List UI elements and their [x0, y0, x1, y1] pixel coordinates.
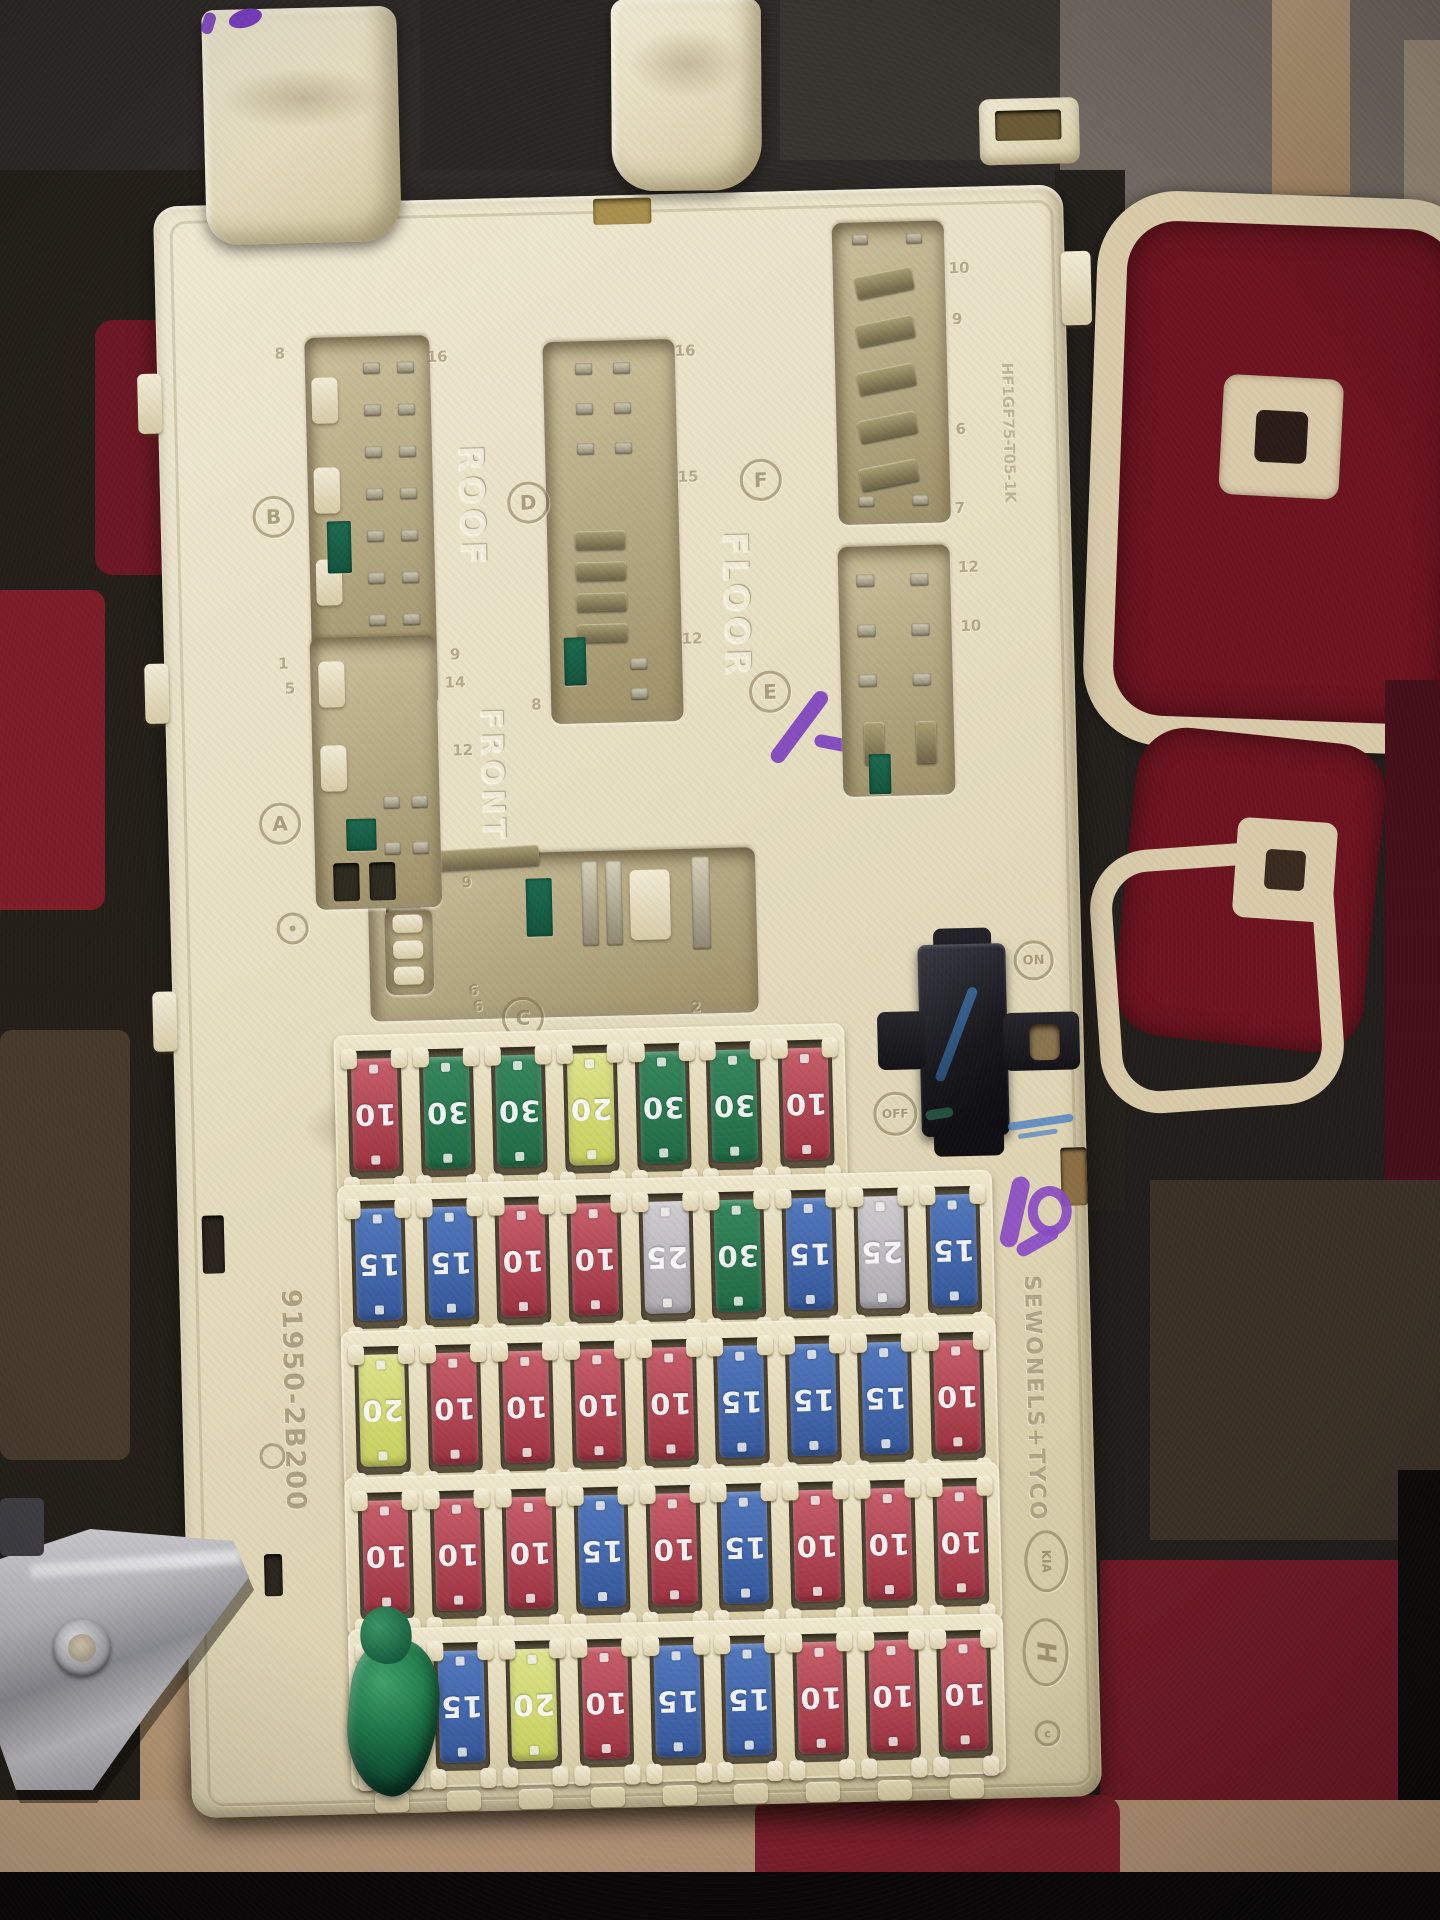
- fuse-amp-label: 15: [785, 1197, 834, 1310]
- slot-clip-nub: [502, 1767, 518, 1787]
- slot-clip-nub: [699, 1040, 715, 1060]
- side-nub-3: [152, 991, 177, 1052]
- terminal-pin: [575, 363, 592, 374]
- slot-clip-nub: [682, 1191, 698, 1211]
- terminal-pin: [385, 842, 401, 854]
- fuse-window: [879, 1348, 888, 1357]
- terminal-pin: [364, 404, 381, 415]
- fuse: 10: [868, 1639, 917, 1752]
- fuse-window: [671, 1651, 680, 1660]
- fuse: 10: [502, 1350, 551, 1463]
- side-nub-2: [144, 663, 169, 724]
- slot-clip-nub: [764, 1633, 780, 1653]
- fuse-window: [371, 1155, 380, 1164]
- fuse-window: [458, 1747, 467, 1756]
- slot-clip-nub: [636, 1338, 652, 1358]
- pcb-slot: [327, 521, 352, 574]
- slot-clip-nub: [477, 1640, 493, 1660]
- slot-clip-nub: [574, 1765, 590, 1785]
- fuse-amp-label: 10: [796, 1641, 845, 1754]
- fuse-window: [961, 1735, 970, 1744]
- cavity-wall-nub: [313, 467, 340, 514]
- fuse: 30: [639, 1051, 688, 1164]
- fuse-window: [376, 1360, 385, 1369]
- fuse-window: [378, 1451, 387, 1460]
- slot-clip-nub: [717, 1762, 733, 1782]
- slot-clip-nub: [836, 1631, 852, 1651]
- slot-clip-nub: [480, 1768, 496, 1788]
- slot-clip-nub: [757, 1335, 773, 1355]
- slot-clip-nub: [760, 1481, 776, 1501]
- fuse: 20: [509, 1648, 558, 1761]
- terminal-pin-large: [855, 314, 916, 347]
- fuse: 10: [434, 1498, 483, 1611]
- terminal-pin: [402, 571, 419, 582]
- slot-clip-nub: [782, 1480, 798, 1500]
- pin-number: 7: [954, 499, 965, 517]
- terminal-pin: [910, 573, 928, 585]
- slot-clip-nub: [923, 1331, 939, 1351]
- pin-number: 2: [690, 998, 701, 1016]
- part-number: 91950-2B200: [275, 1289, 311, 1513]
- pcb-slot: [346, 818, 377, 851]
- fuse-amp-label: 30: [639, 1051, 688, 1164]
- fuse-window: [657, 1057, 666, 1066]
- mold-code: HF1GF75-T05-1K: [998, 363, 1019, 503]
- fuse-window: [443, 1154, 452, 1163]
- terminal-pin: [368, 572, 385, 583]
- fuse: 10: [574, 1349, 623, 1462]
- fuse-window: [448, 1359, 457, 1368]
- slot-clip-nub: [646, 1764, 662, 1784]
- fuse: 30: [495, 1054, 544, 1167]
- fuse-window: [369, 1064, 378, 1073]
- fuse: 15: [717, 1345, 766, 1458]
- pin-number: 9: [952, 310, 963, 328]
- slot-clip-nub: [919, 1185, 935, 1205]
- fuse: 10: [498, 1204, 547, 1317]
- fuse: 15: [426, 1206, 475, 1319]
- fuse-window: [445, 1213, 454, 1222]
- fuse-window: [947, 1200, 956, 1209]
- bracket-rivet: [53, 1619, 111, 1677]
- slot-clip-nub: [703, 1190, 719, 1210]
- top-tab-slot: [995, 109, 1062, 141]
- fuse-amp-label: 10: [581, 1647, 630, 1760]
- fuse-amp-label: 15: [653, 1645, 702, 1758]
- slot-clip-nub: [351, 1491, 367, 1511]
- slot-clip-nub: [643, 1636, 659, 1656]
- terminal-pin: [912, 495, 928, 505]
- fuse-window: [674, 1742, 683, 1751]
- slot-clip-nub: [485, 1045, 501, 1065]
- terminal-pin-large: [577, 592, 627, 611]
- fuse-window: [596, 1501, 605, 1510]
- fuse-amp-label: 30: [710, 1049, 759, 1162]
- fuse-amp-label: 30: [495, 1054, 544, 1167]
- connector-cavity-d: [542, 339, 683, 724]
- fuse-window: [732, 1206, 741, 1215]
- slot-clip-nub: [829, 1333, 845, 1353]
- empty-slot: [333, 863, 360, 902]
- fuse-amp-label: 10: [570, 1203, 619, 1316]
- relay-body: [917, 943, 1010, 1137]
- terminal-pin: [369, 614, 386, 625]
- fuse: 10: [506, 1496, 555, 1609]
- fuse-window: [527, 1655, 536, 1664]
- slot-clip-nub: [416, 1197, 432, 1217]
- fuse: 10: [430, 1352, 479, 1465]
- fuse: 10: [793, 1489, 842, 1602]
- pin-number: 12: [681, 629, 702, 648]
- fuse-amp-label: 15: [929, 1194, 978, 1307]
- terminal-pin: [577, 443, 594, 454]
- fuse: 15: [861, 1342, 910, 1455]
- slot-clip-nub: [629, 1042, 645, 1062]
- slot-clip-nub: [930, 1629, 946, 1649]
- slot-clip-nub: [624, 1764, 640, 1784]
- terminal-pin: [631, 688, 648, 699]
- terminal-pin-large: [576, 561, 626, 580]
- terminal-pin-large: [858, 458, 919, 491]
- slot-clip-nub: [542, 1340, 558, 1360]
- fuse-window: [599, 1653, 608, 1662]
- fuse-amp-label: 10: [864, 1488, 913, 1601]
- fuse-window: [594, 1446, 603, 1455]
- fuse-amp-label: 15: [789, 1343, 838, 1456]
- slot-clip-nub: [839, 1759, 855, 1779]
- terminal-pin: [911, 623, 929, 635]
- fuse-window: [589, 1209, 598, 1218]
- slot-clip-nub: [771, 1038, 787, 1058]
- slot-clip-nub: [632, 1192, 648, 1212]
- slot-clip-nub: [401, 1490, 417, 1510]
- fuse-window: [670, 1590, 679, 1599]
- slot-clip-nub: [348, 1345, 364, 1365]
- slot-clip-nub: [710, 1482, 726, 1502]
- cavity-wall-nub: [320, 745, 347, 792]
- slot-clip-nub: [753, 1189, 769, 1209]
- terminal-pin: [906, 233, 922, 243]
- on-label: ON: [1022, 953, 1044, 969]
- fuse-window: [663, 1298, 672, 1307]
- fuse: 10: [650, 1493, 699, 1606]
- fuse: 10: [782, 1047, 831, 1160]
- slot-clip-nub: [470, 1342, 486, 1362]
- fuse-window: [441, 1063, 450, 1072]
- fuse-amp-label: 15: [437, 1650, 486, 1763]
- fuse-amp-label: 15: [355, 1208, 404, 1321]
- slot-clip-nub: [851, 1333, 867, 1353]
- slot-clip-nub: [607, 1042, 623, 1062]
- fuse-window: [524, 1503, 533, 1512]
- fuse-amp-label: 10: [650, 1493, 699, 1606]
- slot-clip-nub: [639, 1484, 655, 1504]
- fuse-window: [741, 1588, 750, 1597]
- slot-clip-nub: [976, 1476, 992, 1496]
- fuse-amp-label: 10: [933, 1340, 982, 1453]
- slot-clip-nub: [473, 1488, 489, 1508]
- roof-label: ROOF: [450, 445, 493, 569]
- photo-scene: ON OFF ROOF FLOOR FRONT 91950-2B200 HF1G…: [0, 0, 1440, 1920]
- fuse-amp-label: 15: [426, 1206, 475, 1319]
- empty-slot: [369, 862, 396, 901]
- slot-clip-nub: [538, 1194, 554, 1214]
- fuse-amp-label: 15: [721, 1491, 770, 1604]
- pin-number: 1: [278, 654, 289, 672]
- fuse: 30: [423, 1056, 472, 1169]
- slot-clip-nub: [911, 1757, 927, 1777]
- bottom-slot-foot: [447, 1790, 481, 1811]
- terminal-pin: [615, 442, 632, 453]
- fuse: 30: [713, 1199, 762, 1312]
- terminal-pin: [363, 362, 380, 373]
- terminal-pin: [400, 487, 417, 498]
- fuse-window: [530, 1746, 539, 1755]
- relay-arm-left: [877, 1011, 926, 1070]
- fuse: 15: [929, 1194, 978, 1307]
- fuse-window: [598, 1592, 607, 1601]
- fuse-window: [382, 1597, 391, 1606]
- fuse-window: [513, 1061, 522, 1070]
- fuse-amp-label: 25: [642, 1201, 691, 1314]
- relay-arm-hole: [1029, 1024, 1060, 1061]
- bracket-highlight: [30, 1550, 240, 1579]
- slot-clip-nub: [564, 1340, 580, 1360]
- fuse-window: [745, 1740, 754, 1749]
- slot-clip-nub: [423, 1489, 439, 1509]
- fuse-window: [373, 1214, 382, 1223]
- pin-number: 10: [948, 259, 969, 278]
- slot-clip-nub: [488, 1195, 504, 1215]
- pin-number: 9: [450, 645, 461, 663]
- slot-clip-nub: [832, 1479, 848, 1499]
- fuse-window: [814, 1648, 823, 1657]
- floor-label: FLOOR: [714, 531, 758, 680]
- pin-number: 6: [472, 997, 483, 1015]
- fuse-amp-label: 10: [434, 1498, 483, 1611]
- slot-clip-nub: [391, 1048, 407, 1068]
- fuse: 15: [789, 1343, 838, 1456]
- fuse-window: [380, 1506, 389, 1515]
- fuse-window: [955, 1492, 964, 1501]
- pin-number: 12: [958, 558, 979, 577]
- fuse-window: [807, 1350, 816, 1359]
- fuse: 30: [710, 1049, 759, 1162]
- pin-number: 5: [285, 679, 296, 697]
- side-nub-1: [137, 374, 162, 435]
- connector-cavity-f: [832, 220, 951, 525]
- fuse-amp-label: 20: [509, 1648, 558, 1761]
- fuse-window: [876, 1202, 885, 1211]
- bottom-slot-foot: [806, 1781, 840, 1802]
- slot-clip-nub: [495, 1487, 511, 1507]
- terminal-pin: [411, 795, 427, 807]
- fuse: 10: [940, 1638, 989, 1751]
- terminal-pin: [399, 445, 416, 456]
- pin-number: 16: [674, 341, 695, 360]
- slot-clip-nub: [535, 1044, 551, 1064]
- fuse: 15: [437, 1650, 486, 1763]
- slot-clip-nub: [858, 1630, 874, 1650]
- slot-clip-nub: [933, 1757, 949, 1777]
- terminal-pin: [614, 402, 631, 413]
- fuse-window: [659, 1148, 668, 1157]
- fuse: 10: [581, 1647, 630, 1760]
- slot-clip-nub: [614, 1338, 630, 1358]
- pin-number: 8: [274, 344, 285, 362]
- fuse-amp-label: 10: [362, 1500, 411, 1613]
- fuse: 10: [646, 1347, 695, 1460]
- front-label: FRONT: [473, 708, 511, 843]
- fuse-window: [602, 1744, 611, 1753]
- fuse-window: [728, 1056, 737, 1065]
- fuse-amp-label: 25: [857, 1196, 906, 1309]
- fuse: 10: [570, 1203, 619, 1316]
- slot-clip-nub: [560, 1194, 576, 1214]
- fuse-window: [817, 1739, 826, 1748]
- fuse-window: [668, 1499, 677, 1508]
- slot-clip-nub: [549, 1638, 565, 1658]
- bottom-slot-foot: [663, 1785, 697, 1806]
- slot-clip-nub: [983, 1755, 999, 1775]
- slot-clip-nub: [430, 1769, 446, 1789]
- fuse-amp-label: 10: [868, 1639, 917, 1752]
- fuse-window: [958, 1644, 967, 1653]
- slot-clip-nub: [847, 1187, 863, 1207]
- fuse: 20: [567, 1053, 616, 1166]
- pin-number: 10: [960, 617, 981, 636]
- fuse-amp-label: 10: [574, 1349, 623, 1462]
- fuse-amp-label: 30: [713, 1199, 762, 1312]
- fuse-amp-label: 10: [506, 1496, 555, 1609]
- fuse-window: [455, 1656, 464, 1665]
- fuse: 20: [358, 1354, 407, 1467]
- fuse-window: [517, 1211, 526, 1220]
- fuse: 25: [857, 1196, 906, 1309]
- slot-clip-nub: [689, 1483, 705, 1503]
- slot-clip-nub: [969, 1184, 985, 1204]
- slot-clip-nub: [908, 1629, 924, 1649]
- terminal-pin: [913, 673, 931, 685]
- fuse-window: [881, 1439, 890, 1448]
- top-edge-slot: [593, 198, 652, 225]
- slot-clip-nub: [466, 1196, 482, 1216]
- fuse-window: [951, 1346, 960, 1355]
- fuse-amp-label: 20: [358, 1354, 407, 1467]
- slot-clip-nub: [344, 1199, 360, 1219]
- side-nub-right: [1060, 251, 1092, 326]
- terminal-pin: [613, 362, 630, 373]
- fuse: 15: [653, 1645, 702, 1758]
- slot-clip-nub: [861, 1758, 877, 1778]
- bottom-slot-foot: [878, 1780, 912, 1801]
- terminal-pin: [856, 574, 874, 586]
- fuse-window: [522, 1448, 531, 1457]
- fuse: 15: [355, 1208, 404, 1321]
- terminal-pin-large: [856, 362, 917, 395]
- slot-clip-nub: [926, 1477, 942, 1497]
- fuse-window: [739, 1498, 748, 1507]
- fuse-amp-label: 10: [502, 1350, 551, 1463]
- fuse-amp-label: 15: [861, 1342, 910, 1455]
- terminal-pin-large: [857, 410, 918, 443]
- slot-clip-nub: [897, 1185, 913, 1205]
- slot-clip-nub: [567, 1486, 583, 1506]
- slot-clip-nub: [789, 1760, 805, 1780]
- fuse-window: [737, 1443, 746, 1452]
- terminal-pin: [630, 658, 647, 669]
- fuse-window: [585, 1059, 594, 1068]
- slot-clip-nub: [707, 1336, 723, 1356]
- fuse-window: [800, 1054, 809, 1063]
- cavity-wall-nub: [311, 377, 338, 424]
- terminal-pin: [857, 624, 875, 636]
- slot-clip-nub: [686, 1337, 702, 1357]
- bottom-slot-foot: [519, 1788, 553, 1809]
- slot-clip-nub: [980, 1627, 996, 1647]
- terminal-pin: [366, 488, 383, 499]
- fuse-window: [664, 1353, 673, 1362]
- fuse-window: [742, 1649, 751, 1658]
- fuse-window: [809, 1441, 818, 1450]
- fuse-window: [886, 1646, 895, 1655]
- fuse-window: [950, 1291, 959, 1300]
- fuse-window: [661, 1207, 670, 1216]
- slot-clip-nub: [973, 1330, 989, 1350]
- fuse: 10: [796, 1641, 845, 1754]
- terminal-pin: [367, 530, 384, 541]
- fuse-window: [520, 1357, 529, 1366]
- pcb-slot: [564, 637, 587, 686]
- terminal-pin: [398, 403, 415, 414]
- slot-clip-nub: [552, 1766, 568, 1786]
- off-label: OFF: [882, 1106, 909, 1121]
- fuse-window: [878, 1293, 887, 1302]
- pin-number: 6: [955, 420, 966, 438]
- fuse-amp-label: 30: [423, 1056, 472, 1169]
- fuse-window: [734, 1297, 743, 1306]
- terminal-pin: [403, 613, 420, 624]
- fuse-window: [735, 1352, 744, 1361]
- fuse-window: [802, 1145, 811, 1154]
- fuse-amp-label: 20: [567, 1053, 616, 1166]
- slot-clip-nub: [463, 1046, 479, 1066]
- slot-clip-nub: [413, 1047, 429, 1067]
- slot-clip-nub: [775, 1188, 791, 1208]
- bottom-slot-foot: [591, 1787, 625, 1808]
- fuse-window: [592, 1355, 601, 1364]
- fuse-amp-label: 15: [724, 1643, 773, 1756]
- fuse-window: [519, 1302, 528, 1311]
- terminal-pin-large: [575, 530, 625, 549]
- fuse: 15: [785, 1197, 834, 1310]
- fuse-window: [883, 1494, 892, 1503]
- slot-clip-nub: [398, 1344, 414, 1364]
- fuse-amp-label: 15: [717, 1345, 766, 1458]
- terminal-pin: [852, 234, 868, 244]
- fuse-window: [811, 1496, 820, 1505]
- fuse: 10: [362, 1500, 411, 1613]
- slot-clip-nub: [714, 1634, 730, 1654]
- pin-number: 14: [444, 673, 465, 692]
- fuse-amp-label: 15: [578, 1495, 627, 1608]
- fuse-window: [953, 1437, 962, 1446]
- terminal-pin: [858, 496, 874, 506]
- slot-clip-nub: [821, 1037, 837, 1057]
- fuse-window: [885, 1585, 894, 1594]
- fuse: 10: [351, 1058, 400, 1171]
